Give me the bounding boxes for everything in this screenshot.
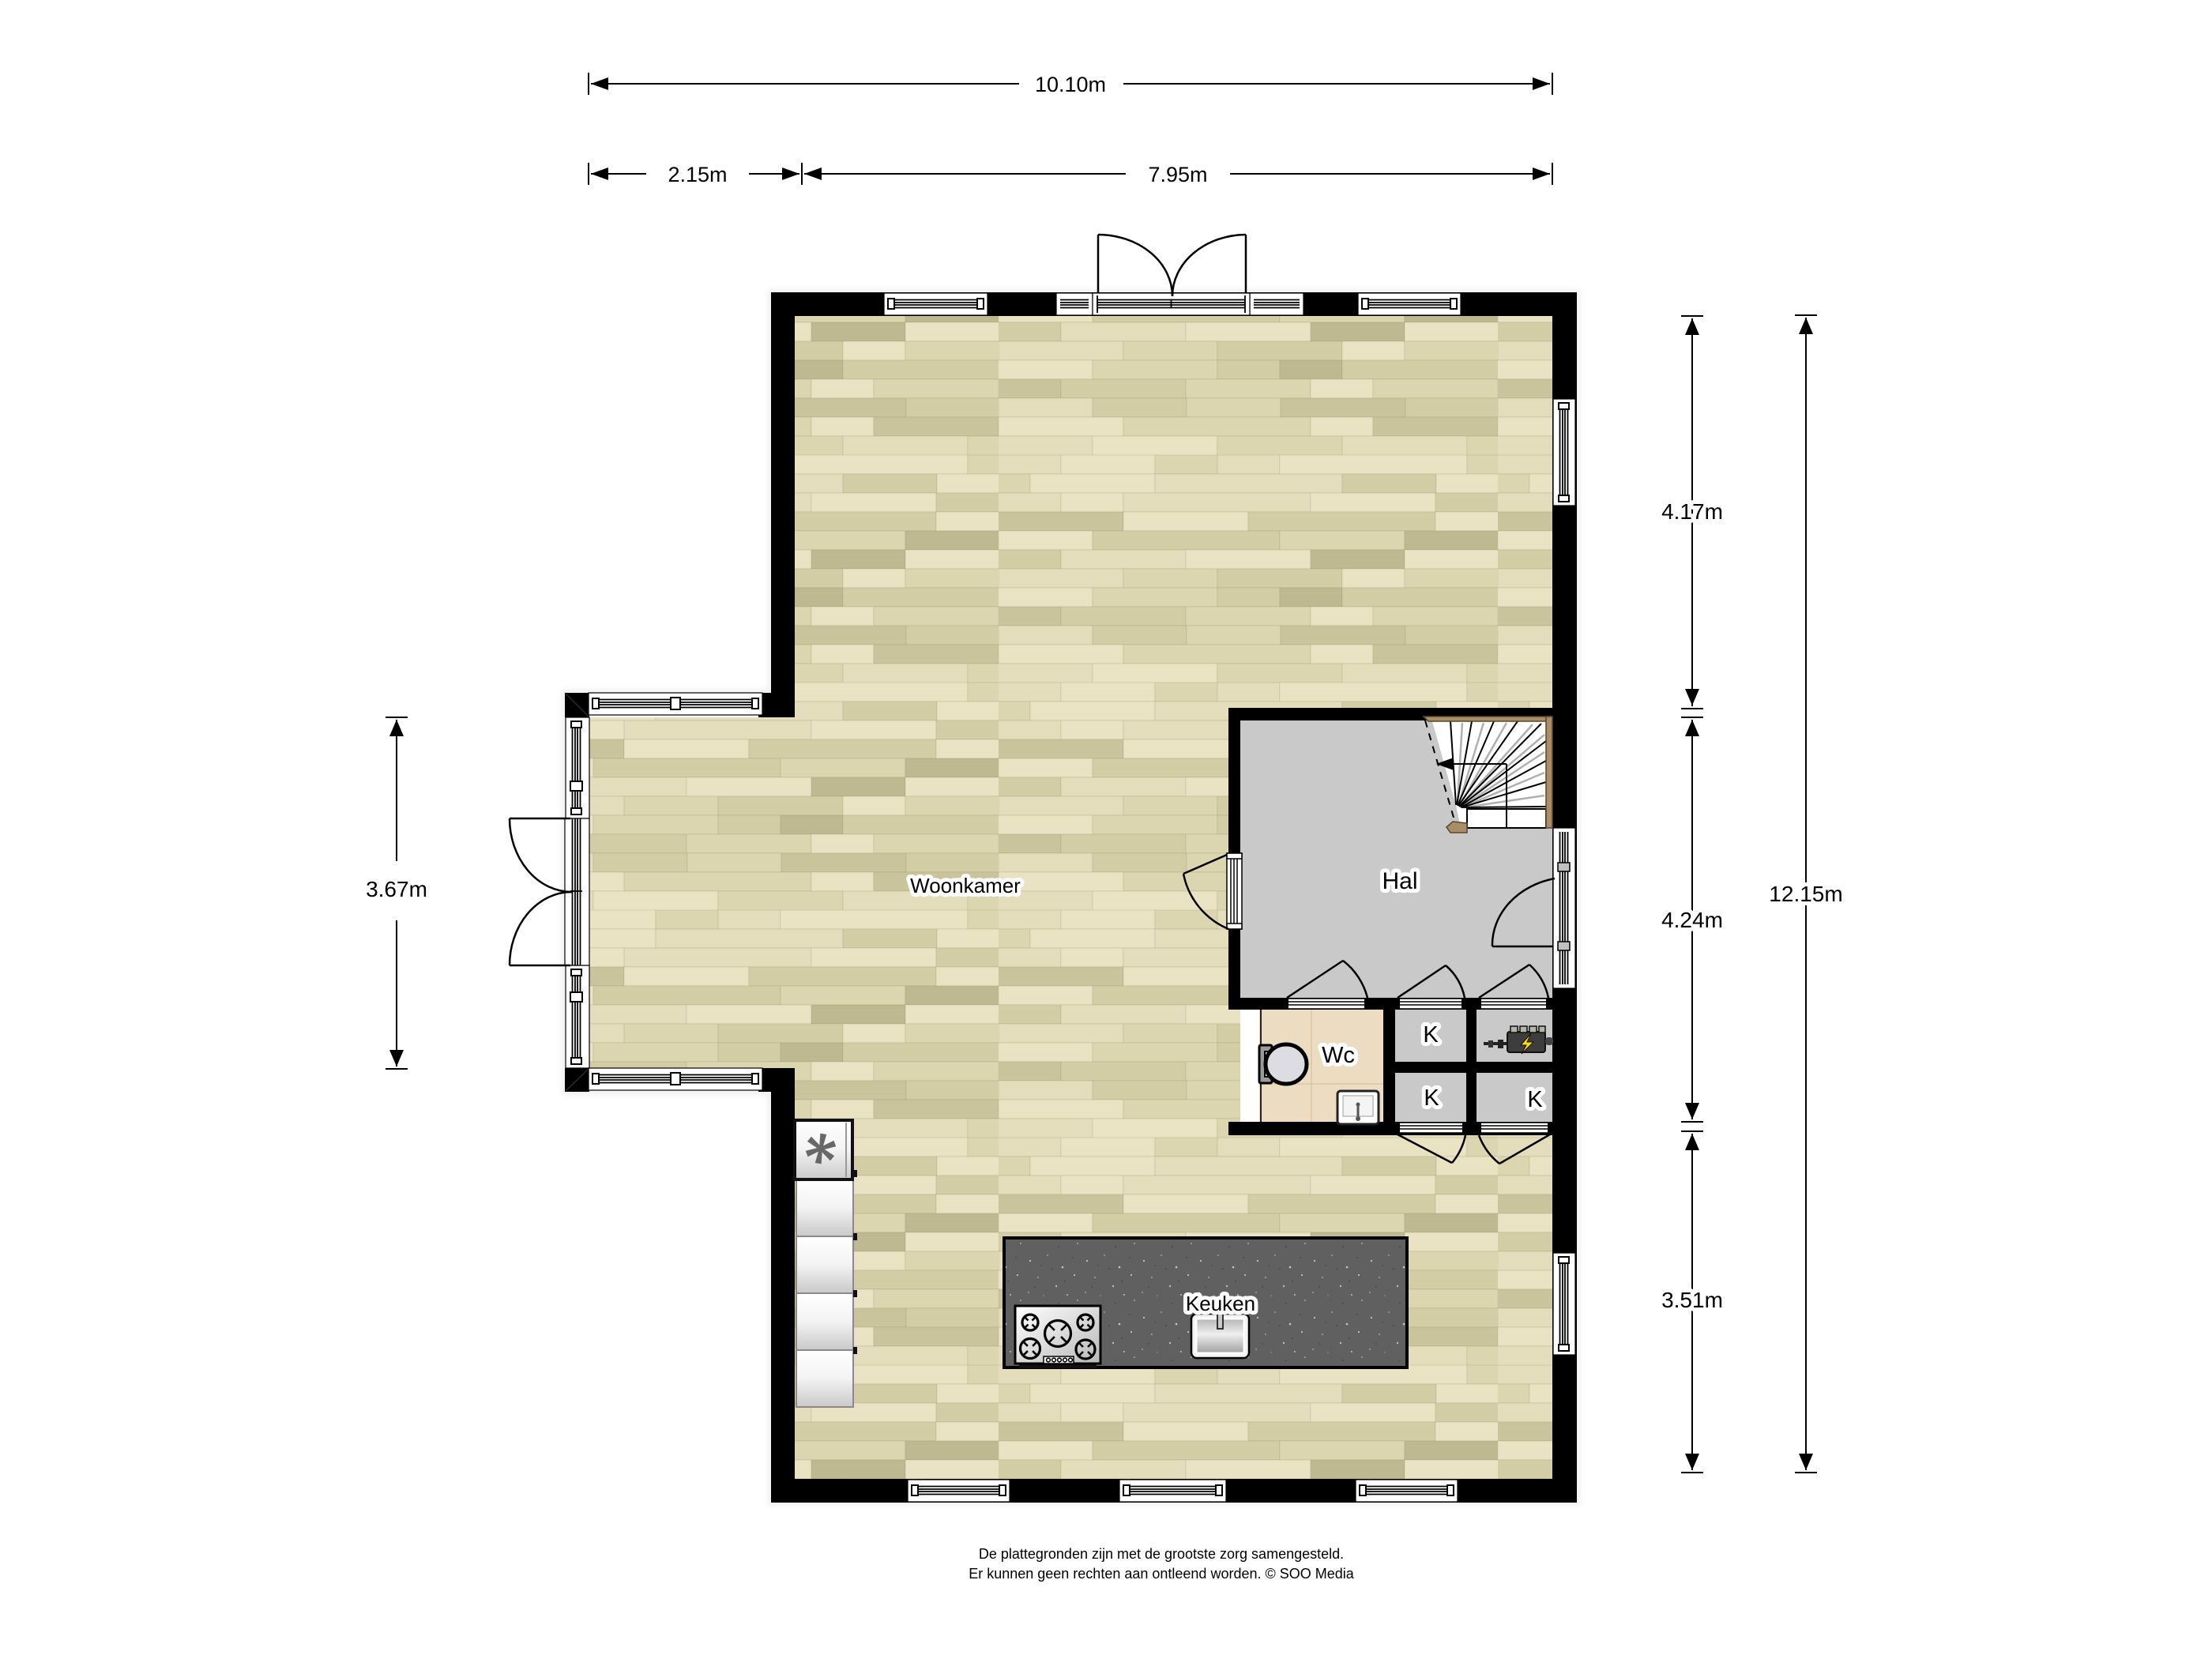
svg-text:Hal: Hal [1382,868,1417,894]
svg-text:Woonkamer: Woonkamer [910,874,1021,897]
svg-text:Keuken: Keuken [1186,1292,1255,1315]
svg-text:K: K [1527,1087,1543,1112]
svg-text:Wc: Wc [1322,1043,1355,1068]
svg-text:2.15m: 2.15m [668,163,727,186]
svg-text:K: K [1424,1085,1439,1111]
svg-text:7.95m: 7.95m [1148,163,1207,186]
svg-text:10.10m: 10.10m [1035,73,1106,96]
svg-text:De plattegronden zijn met de g: De plattegronden zijn met de grootste zo… [979,1546,1344,1562]
svg-text:K: K [1423,1022,1439,1048]
svg-text:Er kunnen geen rechten aan ont: Er kunnen geen rechten aan ontleend word… [969,1566,1355,1582]
svg-text:3.51m: 3.51m [1661,1288,1723,1312]
svg-text:3.67m: 3.67m [366,877,427,901]
svg-text:12.15m: 12.15m [1769,882,1842,906]
svg-text:4.24m: 4.24m [1661,908,1723,932]
svg-text:4.17m: 4.17m [1661,499,1723,524]
